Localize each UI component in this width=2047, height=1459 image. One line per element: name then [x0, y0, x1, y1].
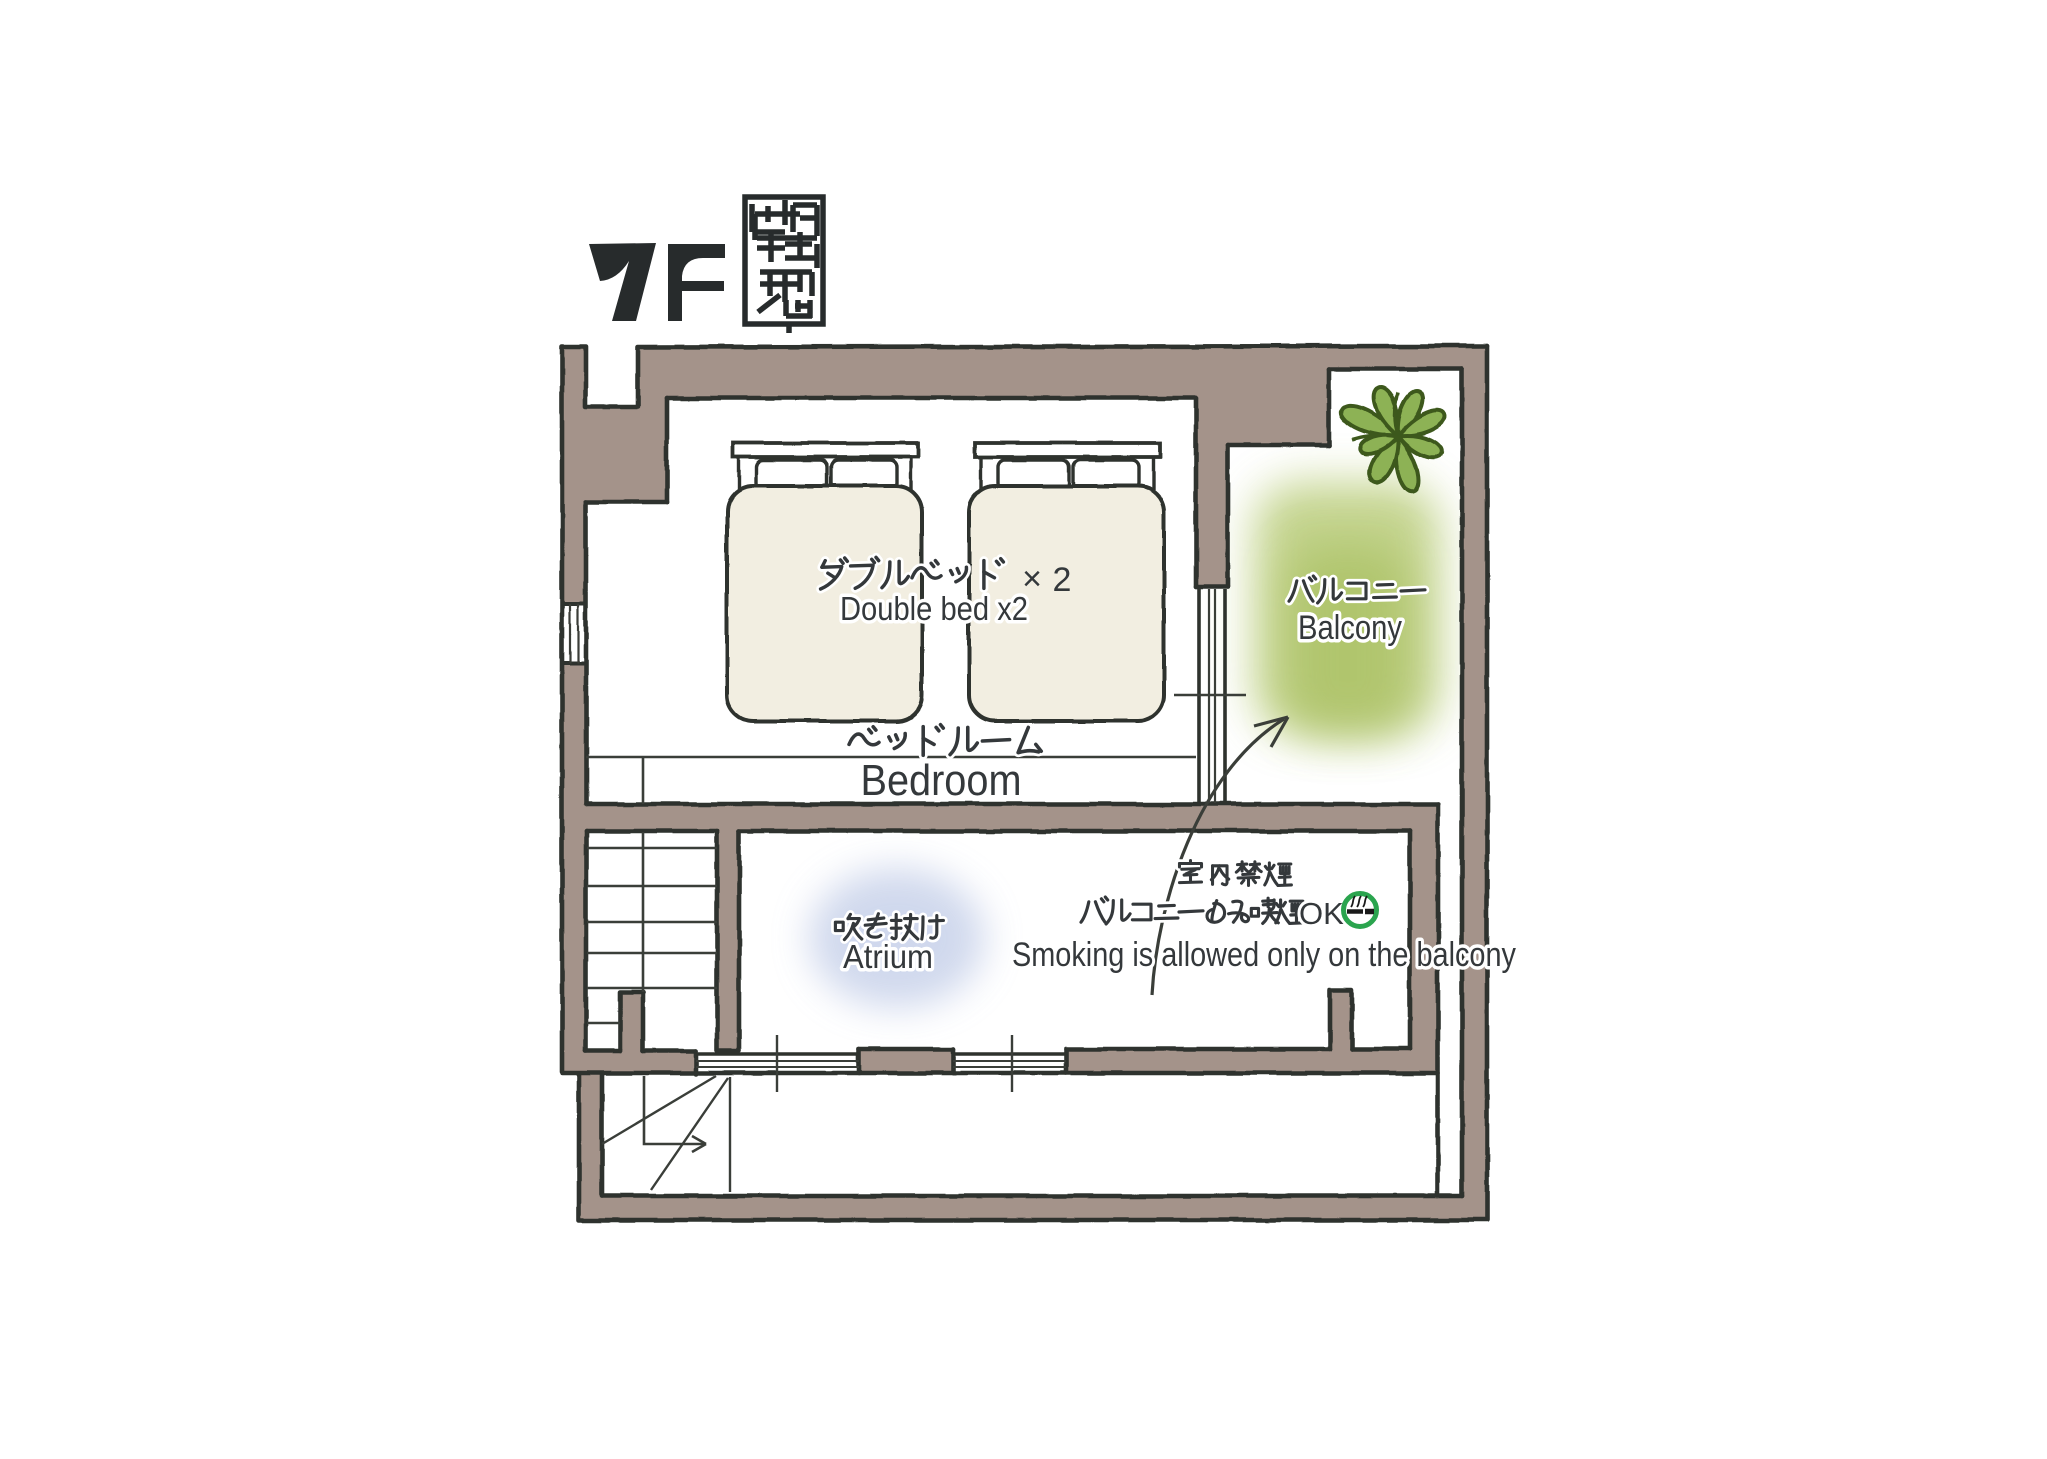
svg-text:Bedroom: Bedroom [861, 756, 1022, 805]
svg-text:Smoking is allowed only on the: Smoking is allowed only on the balcony [1012, 936, 1516, 974]
svg-text:2: 2 [1053, 561, 1072, 599]
svg-text:Double bed x2: Double bed x2 [840, 590, 1028, 627]
svg-text:OK: OK [1299, 896, 1344, 931]
svg-text:Balcony: Balcony [1298, 609, 1402, 647]
svg-text:Atrium: Atrium [843, 938, 933, 975]
